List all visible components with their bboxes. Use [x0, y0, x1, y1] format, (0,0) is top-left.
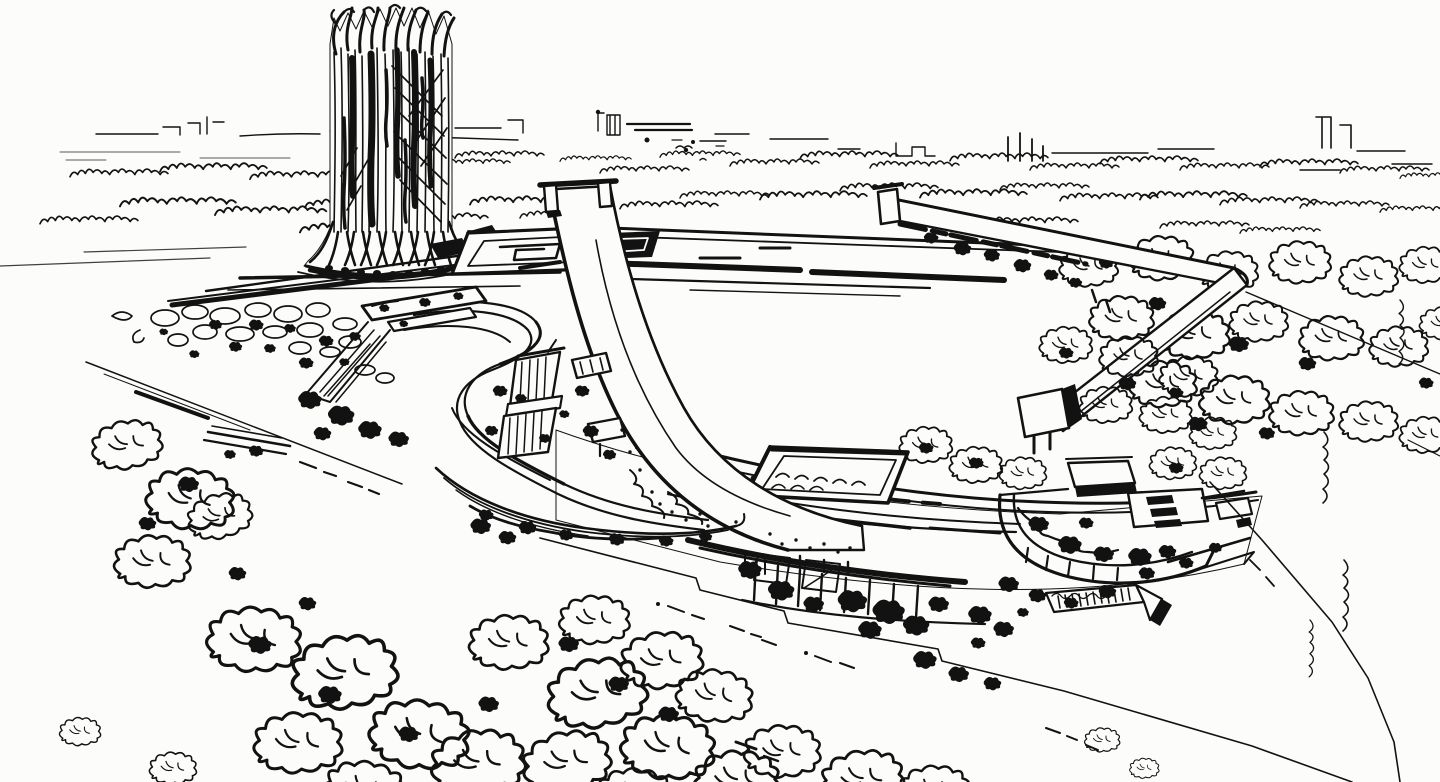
planter-walls [306, 287, 486, 402]
rooftop-vents [1128, 489, 1208, 528]
rooftop-penthouse [1066, 457, 1137, 497]
stair-walls [498, 340, 564, 458]
sketch-canvas: Aerial ink sketch of a modernist campus … [0, 0, 1440, 782]
skyline-tower [598, 113, 620, 135]
wing-start-post [878, 189, 900, 224]
flower-bed [112, 303, 394, 383]
wing-end-block [1018, 389, 1069, 437]
right-margin-vines [1309, 300, 1404, 677]
ink-sketch: Aerial ink sketch of a modernist campus … [0, 0, 1440, 782]
left-bench-steps [204, 426, 290, 459]
horizon-hedges [0, 151, 1440, 266]
shrub-clump-left-road [298, 391, 409, 447]
city-skyline [60, 110, 1432, 170]
